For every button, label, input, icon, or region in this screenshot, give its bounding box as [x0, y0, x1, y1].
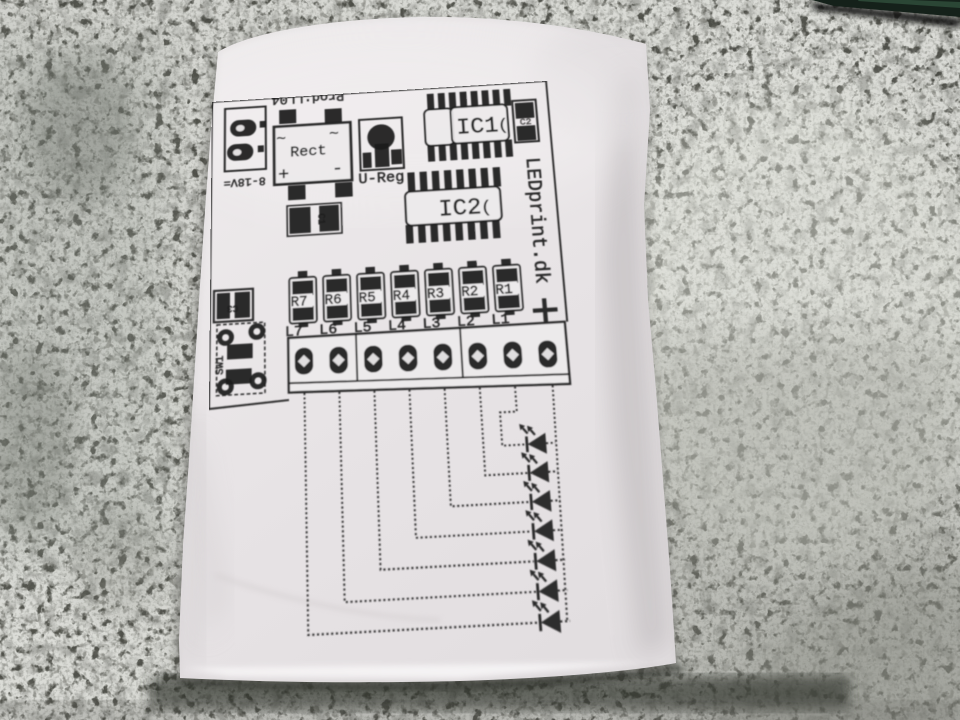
svg-text:LEDprint.dk: LEDprint.dk	[520, 157, 552, 285]
svg-text:~: ~	[329, 125, 339, 144]
svg-text:SW1: SW1	[214, 355, 227, 375]
svg-text:(: (	[497, 116, 509, 135]
svg-text:R3: R3	[427, 285, 445, 302]
svg-text:8-18V=: 8-18V=	[224, 173, 266, 188]
svg-text:R2: R2	[461, 283, 479, 300]
svg-text:R6: R6	[324, 291, 341, 308]
svg-text:R5: R5	[358, 289, 376, 306]
svg-text:Rect: Rect	[290, 143, 327, 161]
svg-text:C1: C1	[315, 213, 326, 225]
svg-text:U-Reg: U-Reg	[358, 169, 405, 188]
svg-text:IC2: IC2	[438, 194, 482, 223]
svg-text:R1: R1	[495, 281, 514, 298]
svg-text:R7: R7	[290, 293, 307, 310]
svg-text:R4: R4	[393, 287, 411, 304]
svg-text:-: -	[332, 160, 344, 180]
svg-text:(: (	[480, 198, 492, 217]
svg-text:C3: C3	[227, 302, 238, 314]
svg-text:+: +	[278, 166, 289, 186]
svg-text:IC1: IC1	[456, 113, 500, 141]
svg-text:~: ~	[276, 130, 286, 149]
svg-text:C2: C2	[520, 117, 532, 128]
